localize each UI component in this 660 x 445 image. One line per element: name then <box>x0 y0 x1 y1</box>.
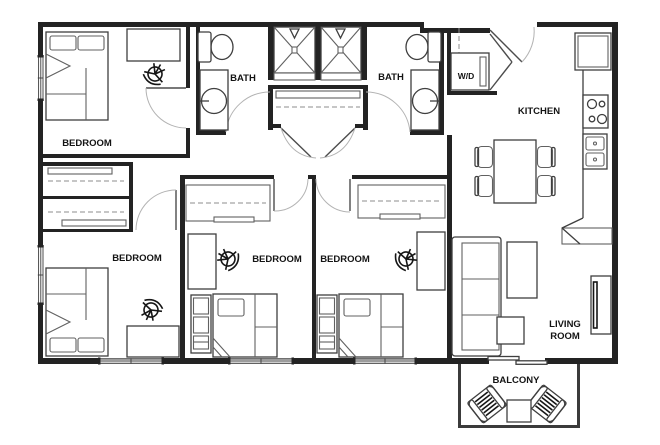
tv-console <box>591 276 611 334</box>
balcony-chair <box>467 385 507 424</box>
door-bedroom-bm <box>274 179 308 211</box>
coffee-table <box>507 242 537 298</box>
kitchen: KITCHEN <box>475 33 612 244</box>
door-hall-closet <box>281 128 355 158</box>
bed <box>46 32 108 120</box>
door-bath-left <box>226 92 270 132</box>
window <box>38 245 44 305</box>
desk-chair <box>141 59 170 88</box>
door-bedroom-br <box>316 179 350 212</box>
closet <box>358 185 445 219</box>
kitchen-sink <box>583 134 607 169</box>
bedroom-bl-label: BEDROOM <box>112 253 162 264</box>
window <box>38 55 44 101</box>
sink-counter <box>411 70 439 130</box>
bath-left-label: BATH <box>230 73 256 84</box>
dining-table <box>494 140 536 203</box>
desk-chair <box>137 296 165 324</box>
sink-counter <box>200 70 228 130</box>
window <box>228 358 294 365</box>
bath-right-label: BATH <box>378 72 404 83</box>
desk-chair <box>213 244 242 273</box>
sliding-door <box>488 357 547 365</box>
bedroom-top-left: BEDROOM <box>46 29 180 149</box>
floor-plan: BATH BATH W/D <box>0 0 660 445</box>
door-bath-right <box>366 92 410 132</box>
window <box>353 358 417 365</box>
living-room: LIVING ROOM <box>452 237 611 356</box>
window <box>98 358 164 365</box>
refrigerator <box>575 33 611 70</box>
bed <box>339 294 403 357</box>
desk <box>127 326 179 357</box>
balcony: BALCONY <box>467 375 567 423</box>
door-wd-bifold <box>490 34 512 90</box>
bath-left: BATH <box>198 27 315 130</box>
toilet <box>198 32 233 62</box>
desk <box>417 232 445 290</box>
dining-chair <box>538 176 556 197</box>
bedroom-bottom-middle: BEDROOM <box>186 185 302 357</box>
wardrobe <box>317 295 337 353</box>
wardrobe <box>191 295 211 353</box>
closet <box>48 212 126 226</box>
bedroom-bottom-right: BEDROOM <box>317 185 445 357</box>
kitchen-label: KITCHEN <box>518 106 560 117</box>
wd-label: W/D <box>458 71 475 81</box>
dining-chair <box>475 176 493 197</box>
balcony-label: BALCONY <box>493 375 541 386</box>
sofa <box>452 237 501 356</box>
bedroom-bm-label: BEDROOM <box>252 254 302 265</box>
door-bedroom-bl <box>136 190 176 230</box>
shower <box>274 27 315 80</box>
washer-dryer-closet: W/D <box>451 28 489 90</box>
bedroom-tl-label: BEDROOM <box>62 138 112 149</box>
door-bedroom-tl <box>146 88 186 128</box>
side-table <box>497 317 524 344</box>
bedroom-bottom-left: BEDROOM <box>46 253 179 357</box>
bath-right: BATH <box>321 27 441 130</box>
desk <box>127 29 180 61</box>
hall-closet <box>276 91 360 107</box>
closet <box>48 168 124 181</box>
bedroom-br-label: BEDROOM <box>320 254 370 265</box>
floor-plan-page: BATH BATH W/D <box>0 0 660 445</box>
balcony-table <box>507 400 531 422</box>
bed <box>213 294 277 357</box>
dining-chair <box>538 147 556 168</box>
living-room-label-2: ROOM <box>550 331 580 342</box>
desk <box>188 234 216 289</box>
living-room-label-1: LIVING <box>549 319 581 330</box>
stove <box>583 95 608 128</box>
toilet <box>406 32 441 62</box>
shower <box>321 27 361 80</box>
bed <box>46 268 108 356</box>
balcony-chair <box>527 385 567 424</box>
dining-chair <box>475 147 493 168</box>
door-entry <box>490 27 534 62</box>
closet <box>186 185 270 222</box>
